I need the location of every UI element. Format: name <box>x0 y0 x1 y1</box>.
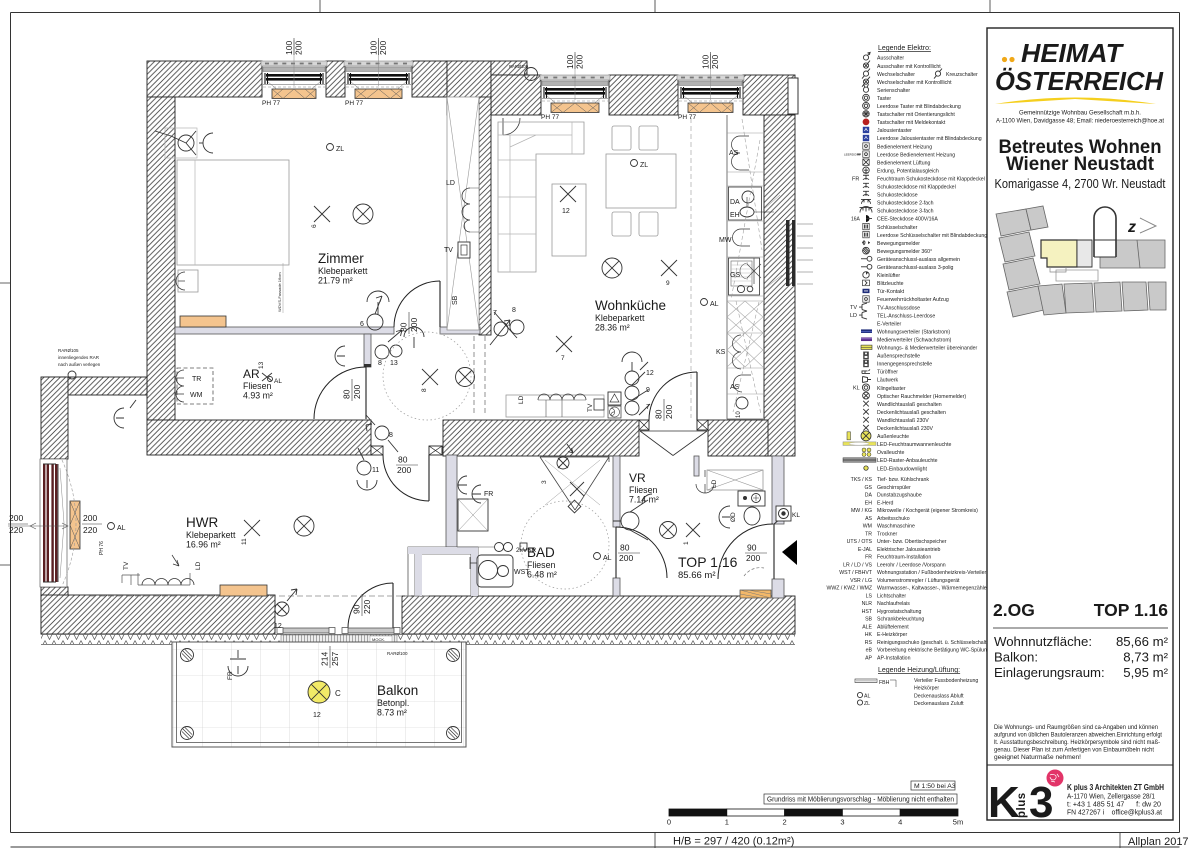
svg-text:KL: KL <box>792 512 800 519</box>
svg-text:Trockner: Trockner <box>877 531 898 537</box>
svg-text:Zimmer: Zimmer <box>318 251 364 266</box>
svg-text:Die Wohnungs- und Raumgrößen s: Die Wohnungs- und Raumgrößen sind ca-Ang… <box>994 724 1158 731</box>
svg-text:Arbeitsschuko: Arbeitsschuko <box>877 516 910 522</box>
svg-text:Einlagerungsraum:: Einlagerungsraum: <box>994 665 1105 680</box>
svg-text:220: 220 <box>83 525 97 535</box>
svg-text:ÖSTERREICH: ÖSTERREICH <box>995 67 1164 96</box>
svg-text:0: 0 <box>667 818 671 827</box>
svg-text:Schrankbeleuchtung: Schrankbeleuchtung <box>877 617 924 623</box>
svg-text:Läutwerk: Läutwerk <box>877 378 898 384</box>
svg-text:85.66 m²: 85.66 m² <box>678 570 716 581</box>
svg-text:WWZ / KWZ / WMZ: WWZ / KWZ / WMZ <box>826 586 872 592</box>
svg-text:6.48 m²: 6.48 m² <box>527 570 557 580</box>
svg-text:Dunstabzugshaube: Dunstabzugshaube <box>877 493 922 499</box>
svg-text:85,66 m²: 85,66 m² <box>1116 634 1169 649</box>
svg-text:200: 200 <box>575 55 585 69</box>
svg-text:Klebeparkett: Klebeparkett <box>186 530 236 540</box>
svg-text:TOP 1.16: TOP 1.16 <box>678 554 738 570</box>
svg-text:11: 11 <box>241 538 248 545</box>
svg-text:AS: AS <box>729 150 739 157</box>
svg-text:Deckenlichtauslaß 230V: Deckenlichtauslaß 230V <box>877 426 933 432</box>
svg-text:Geräteanschlussl-auslass 3-pol: Geräteanschlussl-auslass 3-polig <box>877 265 954 271</box>
svg-text:Nachlaufrelais: Nachlaufrelais <box>877 601 910 607</box>
svg-text:3: 3 <box>840 818 844 827</box>
svg-text:HWR: HWR <box>186 515 218 530</box>
svg-text:12: 12 <box>646 370 654 377</box>
svg-text:FN 427267 i office@kplus3.a: FN 427267 i office@kplus3.at <box>1067 808 1162 817</box>
svg-text:aufgrund von üblichen Bautoler: aufgrund von üblichen Bautoleranzen abwe… <box>994 732 1162 739</box>
svg-text:Gemeinnützige Wohnbau Gesellsc: Gemeinnützige Wohnbau Gesellschaft m.b.h… <box>1019 110 1141 117</box>
svg-text:M 1:50 bei A3: M 1:50 bei A3 <box>914 783 956 790</box>
svg-text:Fliesen: Fliesen <box>629 485 657 495</box>
svg-text:WM: WM <box>190 392 203 399</box>
svg-text:LD: LD <box>711 479 718 488</box>
svg-text:LR / LD / VS: LR / LD / VS <box>843 562 872 568</box>
svg-text:2: 2 <box>783 818 787 827</box>
svg-text:Betonpl.: Betonpl. <box>377 698 409 708</box>
svg-text:z: z <box>1127 219 1136 236</box>
svg-text:Feuchtraum-Installation: Feuchtraum-Installation <box>877 555 931 561</box>
svg-text:genau. Dieser Plan ist zum Anf: genau. Dieser Plan ist zum Anfertigen vo… <box>994 747 1154 754</box>
svg-text:200: 200 <box>397 465 411 475</box>
svg-text:TR: TR <box>865 531 872 537</box>
svg-text:ZL: ZL <box>640 162 648 169</box>
svg-text:TV: TV <box>444 247 453 254</box>
svg-text:Schukosteckdose mit Klappdecke: Schukosteckdose mit Klappdeckel <box>877 185 956 191</box>
svg-text:AL: AL <box>710 301 719 308</box>
svg-text:Klebeparkett: Klebeparkett <box>595 313 645 323</box>
svg-text:Unter- bzw. Obertischspeicher: Unter- bzw. Obertischspeicher <box>877 539 947 545</box>
svg-text:8: 8 <box>378 360 382 367</box>
svg-text:200: 200 <box>664 405 674 419</box>
svg-text:Optischer Rauchmelder (Homemel: Optischer Rauchmelder (Homemelder) <box>877 394 966 400</box>
svg-text:Tastschalter mit Orientierungs: Tastschalter mit Orientierungslicht <box>877 112 955 118</box>
svg-text:MW / KG: MW / KG <box>851 508 872 514</box>
svg-text:RS: RS <box>865 640 873 646</box>
svg-text:FR: FR <box>227 671 234 680</box>
svg-text:FR: FR <box>484 491 493 498</box>
svg-text:FBH: FBH <box>879 680 890 686</box>
svg-text:PH 77: PH 77 <box>541 114 559 121</box>
svg-text:90: 90 <box>352 604 362 614</box>
svg-text:Wohnküche: Wohnküche <box>595 298 666 313</box>
svg-text:200: 200 <box>9 513 23 523</box>
svg-text:NLR: NLR <box>862 601 873 607</box>
svg-text:Leerdose Schlüsselschalter mit: Leerdose Schlüsselschalter mit Blindabde… <box>877 233 987 239</box>
svg-text:Serienschalter: Serienschalter <box>877 88 910 94</box>
svg-text:Kleinlüfter: Kleinlüfter <box>877 273 900 279</box>
svg-text:Heizkörper: Heizkörper <box>914 686 939 692</box>
svg-text:E-JAL: E-JAL <box>858 547 872 553</box>
svg-text:LD: LD <box>518 395 525 404</box>
svg-text:LEERDOSE: LEERDOSE <box>844 153 860 157</box>
svg-text:WM: WM <box>863 524 872 530</box>
svg-text:DA: DA <box>865 493 873 499</box>
svg-text:200: 200 <box>352 385 362 399</box>
svg-text:A-1100 Wien, Davidgasse 48; Em: A-1100 Wien, Davidgasse 48; Email: niede… <box>996 118 1164 125</box>
svg-text:16.96 m²: 16.96 m² <box>186 540 221 550</box>
svg-text:Deckenauslass Abluft: Deckenauslass Abluft <box>914 694 964 700</box>
svg-text:1: 1 <box>725 818 729 827</box>
svg-text:12: 12 <box>274 623 282 630</box>
svg-text:13: 13 <box>390 360 398 367</box>
svg-text:Tief- bzw. Kühlschrank: Tief- bzw. Kühlschrank <box>877 477 929 483</box>
svg-text:Außenleuchte: Außenleuchte <box>877 434 909 440</box>
svg-text:HEIMAT: HEIMAT <box>1021 38 1124 68</box>
svg-text:Wohnungsverteiler (Starkstrom): Wohnungsverteiler (Starkstrom) <box>877 329 950 335</box>
svg-text:EH: EH <box>865 500 872 506</box>
svg-text:Wiener Neustadt: Wiener Neustadt <box>1006 153 1154 175</box>
svg-text:Vorbereitung elektrische Betät: Vorbereitung elektrische Betätigung WC-S… <box>877 648 990 654</box>
svg-text:Kreuzschalter: Kreuzschalter <box>946 72 978 78</box>
svg-text:Leerdose Jalousientaster mit B: Leerdose Jalousientaster mit Blindabdeck… <box>877 136 982 142</box>
svg-text:2.OG: 2.OG <box>993 600 1035 620</box>
svg-text:11: 11 <box>372 467 379 474</box>
svg-text:WST / FBHVT: WST / FBHVT <box>839 570 873 576</box>
svg-text:4.93 m²: 4.93 m² <box>243 391 273 401</box>
svg-text:200: 200 <box>378 41 388 55</box>
svg-text:ZL: ZL <box>864 701 870 707</box>
svg-text:innenliegendes RAR: innenliegendes RAR <box>58 355 100 360</box>
svg-text:Wandlichtauslaß 230V: Wandlichtauslaß 230V <box>877 418 929 424</box>
svg-text:Allplan 2017: Allplan 2017 <box>1128 836 1189 848</box>
svg-text:80: 80 <box>620 543 630 553</box>
svg-text:AS: AS <box>865 516 872 522</box>
svg-text:220: 220 <box>9 525 23 535</box>
svg-text:TV: TV <box>587 403 594 412</box>
svg-text:Grundriss mit Möblierungsvorsc: Grundriss mit Möblierungsvorschlag - Möb… <box>767 797 954 804</box>
svg-text:E-Herd: E-Herd <box>877 500 894 506</box>
svg-text:Legende Heizung/Lüftung:: Legende Heizung/Lüftung: <box>878 667 960 674</box>
svg-text:E-Heizkörper: E-Heizkörper <box>877 632 908 638</box>
svg-text:Medienverteiler (Schwachstrom): Medienverteiler (Schwachstrom) <box>877 337 952 343</box>
svg-text:E-Verteiler: E-Verteiler <box>877 321 901 327</box>
svg-text:LS: LS <box>866 593 873 599</box>
svg-text:AS: AS <box>730 384 740 391</box>
svg-text:DA: DA <box>730 199 740 206</box>
svg-text:80: 80 <box>399 322 409 332</box>
svg-text:ZL: ZL <box>336 146 344 153</box>
svg-text:10: 10 <box>736 411 742 418</box>
svg-text:8: 8 <box>512 307 516 314</box>
svg-text:H/B = 297 / 420 (0.12m²): H/B = 297 / 420 (0.12m²) <box>673 836 794 848</box>
svg-text:6: 6 <box>360 321 364 328</box>
svg-text:2xVSR: 2xVSR <box>516 547 537 554</box>
svg-text:KL: KL <box>853 386 860 392</box>
svg-text:TKS / KS: TKS / KS <box>851 477 873 483</box>
svg-text:Reinigungsschuko (geschalt. ü.: Reinigungsschuko (geschalt. ü. Schlüssel… <box>877 640 993 646</box>
svg-text:200: 200 <box>294 41 304 55</box>
svg-text:80: 80 <box>398 455 408 465</box>
svg-text:Ovalleuchte: Ovalleuchte <box>877 450 905 456</box>
svg-text:HK: HK <box>865 632 873 638</box>
svg-text:RARØ105: RARØ105 <box>58 348 79 353</box>
svg-text:28.36 m²: 28.36 m² <box>595 323 630 333</box>
svg-text:EH: EH <box>730 212 740 219</box>
svg-text:PH 77: PH 77 <box>345 100 363 107</box>
svg-text:5,95 m²: 5,95 m² <box>1123 665 1168 680</box>
svg-text:Hygrostatschaltung: Hygrostatschaltung <box>877 609 922 615</box>
svg-text:geeignet Naturmaße nehmen!: geeignet Naturmaße nehmen! <box>994 754 1081 761</box>
svg-text:21.79 m²: 21.79 m² <box>318 276 353 286</box>
svg-text:PH 77: PH 77 <box>262 100 280 107</box>
svg-text:Wohnungsstation / Fußbodenheiz: Wohnungsstation / Fußbodenheizkreis-Vert… <box>877 570 986 576</box>
svg-text:Blitzleuchte: Blitzleuchte <box>877 281 904 287</box>
svg-text:Bewegungsmelder 360°: Bewegungsmelder 360° <box>877 249 932 255</box>
svg-text:Waschmaschine: Waschmaschine <box>877 524 915 530</box>
svg-text:9: 9 <box>666 280 670 287</box>
svg-text:7: 7 <box>561 355 565 362</box>
svg-text:Innengegensprechstelle: Innengegensprechstelle <box>877 362 932 368</box>
svg-text:LD: LD <box>195 561 202 570</box>
svg-text:Fliesen: Fliesen <box>527 560 555 570</box>
svg-text:WST: WST <box>514 569 530 576</box>
svg-text:200: 200 <box>746 553 760 563</box>
svg-text:Bedienelement Heizung: Bedienelement Heizung <box>877 144 932 150</box>
svg-text:8.73 m²: 8.73 m² <box>377 708 407 718</box>
svg-text:90: 90 <box>747 543 757 553</box>
svg-text:220: 220 <box>362 600 372 614</box>
svg-text:3: 3 <box>541 480 548 484</box>
svg-text:214: 214 <box>320 652 330 666</box>
svg-text:16A: 16A <box>851 217 861 223</box>
svg-text:Leerohr / Leerdose /Vorspann: Leerohr / Leerdose /Vorspann <box>877 562 946 568</box>
svg-text:Türöffner: Türöffner <box>877 370 898 376</box>
svg-text:Schukosteckdose 3-fach: Schukosteckdose 3-fach <box>877 209 934 215</box>
svg-text:Wechselschalter: Wechselschalter <box>877 72 915 78</box>
svg-text:Geräteanschlussl-auslass allge: Geräteanschlussl-auslass allgemein <box>877 257 960 263</box>
svg-text:KS: KS <box>716 349 726 356</box>
svg-text:TV: TV <box>850 305 857 311</box>
svg-text:FR: FR <box>865 555 872 561</box>
svg-text:Leerdose Bedienelement Heizung: Leerdose Bedienelement Heizung <box>877 152 955 158</box>
svg-text:PH 76: PH 76 <box>99 541 105 555</box>
svg-text:Schlüsselschalter: Schlüsselschalter <box>877 225 918 231</box>
svg-text:AP-Installation: AP-Installation <box>877 655 911 661</box>
svg-text:7: 7 <box>493 310 497 317</box>
svg-text:200: 200 <box>83 513 97 523</box>
svg-text:Leerdose Taster mit Blindabdec: Leerdose Taster mit Blindabdeckung <box>877 104 961 110</box>
svg-text:8: 8 <box>421 388 428 392</box>
svg-text:PH 77: PH 77 <box>678 114 696 121</box>
svg-text:plus: plus <box>1016 792 1028 818</box>
svg-text:Feuerwehrrückholtaster Aufzug: Feuerwehrrückholtaster Aufzug <box>877 297 949 303</box>
svg-text:Taster: Taster <box>877 96 891 102</box>
svg-text:WDVS-Fassade 16cm: WDVS-Fassade 16cm <box>277 272 282 312</box>
svg-text:257: 257 <box>330 652 340 666</box>
svg-text:100: 100 <box>284 41 294 55</box>
svg-text:Komarigasse 4, 2700 Wr. Neusta: Komarigasse 4, 2700 Wr. Neustadt <box>995 176 1166 191</box>
svg-text:Deckenauslass Zuluft: Deckenauslass Zuluft <box>914 701 964 707</box>
svg-text:7: 7 <box>646 404 650 411</box>
svg-text:4: 4 <box>898 818 902 827</box>
svg-text:C: C <box>335 689 341 698</box>
svg-text:12: 12 <box>562 208 570 215</box>
svg-text:Balkon: Balkon <box>377 683 418 698</box>
svg-text:TOP 1.16: TOP 1.16 <box>1094 600 1169 620</box>
svg-text:Mikrowelle / Kochgerät (eigene: Mikrowelle / Kochgerät (eigener Stromkre… <box>877 508 978 514</box>
svg-text:lt. Ausstattungsbeschreibung.: lt. Ausstattungsbeschreibung. Heizkörper… <box>994 739 1160 746</box>
svg-text:Wandlichtauslaß geschalten: Wandlichtauslaß geschalten <box>877 402 942 408</box>
svg-text:Bewegungsmelder: Bewegungsmelder <box>877 241 920 247</box>
svg-text:Tür-Kontakt: Tür-Kontakt <box>877 289 905 295</box>
svg-text:AL: AL <box>603 555 612 562</box>
svg-text:MW: MW <box>719 237 732 244</box>
svg-text:Jalousientaster: Jalousientaster <box>877 128 912 134</box>
svg-text:CEE-Steckdose 400V/16A: CEE-Steckdose 400V/16A <box>877 217 938 223</box>
svg-text:100: 100 <box>369 41 379 55</box>
svg-text:Ausschalter: Ausschalter <box>877 56 904 62</box>
svg-text:Schukosteckdose 2-fach: Schukosteckdose 2-fach <box>877 201 934 207</box>
svg-text:200: 200 <box>710 55 720 69</box>
svg-text:SB: SB <box>865 617 872 623</box>
svg-text:80: 80 <box>654 409 664 419</box>
svg-text:Außensprechstelle: Außensprechstelle <box>877 354 920 360</box>
svg-text:TR: TR <box>192 376 201 383</box>
svg-text:80: 80 <box>342 389 352 399</box>
svg-text:6: 6 <box>311 224 318 228</box>
svg-text:Schukosteckdose: Schukosteckdose <box>877 193 918 199</box>
svg-text:100: 100 <box>701 55 711 69</box>
svg-text:AP: AP <box>865 655 872 661</box>
svg-text:Tastschalter mit Meldekontakt: Tastschalter mit Meldekontakt <box>877 120 946 126</box>
svg-text:TV-Anschlussdose: TV-Anschlussdose <box>877 305 920 311</box>
svg-text:nach außen verlegen: nach außen verlegen <box>58 362 101 367</box>
svg-text:Geschirrspüler: Geschirrspüler <box>877 485 911 491</box>
svg-text:VSR / LG: VSR / LG <box>850 578 872 584</box>
svg-text:100: 100 <box>565 55 575 69</box>
svg-text:AL: AL <box>864 694 870 700</box>
svg-text:ALE: ALE <box>862 624 872 630</box>
svg-text:LD: LD <box>446 180 455 187</box>
svg-text:Elektrischer Jalousieantrieb: Elektrischer Jalousieantrieb <box>877 547 941 553</box>
svg-text:Bedienelement Lüftung: Bedienelement Lüftung <box>877 160 930 166</box>
svg-text:eB: eB <box>866 648 873 654</box>
svg-text:Volumenstromregler / Lüftungsg: Volumenstromregler / Lüftungsgerät <box>877 578 960 584</box>
svg-text:Balkon:: Balkon: <box>994 650 1038 665</box>
svg-text:200: 200 <box>409 318 419 332</box>
svg-text:8: 8 <box>389 432 393 439</box>
svg-text:LED-Feuchtraumwannenleuchte: LED-Feuchtraumwannenleuchte <box>877 442 952 448</box>
svg-text:GS: GS <box>865 485 873 491</box>
svg-text:Fliesen: Fliesen <box>243 381 271 391</box>
svg-text:AL: AL <box>117 525 126 532</box>
svg-text:Warmwasser-, Kaltwasser-, Wärm: Warmwasser-, Kaltwasser-, Wärmemegenzähl… <box>877 586 989 592</box>
svg-text:Ausschalter mit Kontrolllicht: Ausschalter mit Kontrolllicht <box>877 64 941 70</box>
svg-text:5m: 5m <box>953 818 963 827</box>
svg-text:UTS / OTS: UTS / OTS <box>847 539 873 545</box>
svg-text:VR: VR <box>629 471 646 485</box>
svg-text:AL: AL <box>274 378 282 385</box>
svg-text:12: 12 <box>313 712 321 719</box>
svg-text:TV: TV <box>123 561 130 570</box>
svg-text:LD: LD <box>850 313 857 319</box>
svg-text:Legende Elektro:: Legende Elektro: <box>878 45 931 52</box>
svg-text:Wechselschalter mit Kontrollli: Wechselschalter mit Kontrolllicht <box>877 80 952 86</box>
svg-text:Lichtschalter: Lichtschalter <box>877 593 906 599</box>
svg-text:13: 13 <box>258 361 265 369</box>
svg-text:HST: HST <box>862 609 873 615</box>
svg-text:3: 3 <box>1029 778 1053 827</box>
svg-text:200: 200 <box>619 553 633 563</box>
svg-text:LED-Einbaudownlight: LED-Einbaudownlight <box>877 466 927 472</box>
svg-text:RARØ100: RARØ100 <box>509 64 529 69</box>
svg-text:Klebeparkett: Klebeparkett <box>318 266 368 276</box>
svg-text:Feuchtraum Schukosteckdose mit: Feuchtraum Schukosteckdose mit Klappdeck… <box>877 176 985 182</box>
svg-text:Ablüftelement: Ablüftelement <box>877 624 909 630</box>
svg-text:Verteiler Fussbodenheizung: Verteiler Fussbodenheizung <box>914 678 978 684</box>
svg-text:Wohnnutzfläche:: Wohnnutzfläche: <box>994 634 1092 649</box>
svg-text:8,73 m²: 8,73 m² <box>1123 650 1168 665</box>
svg-text:Klingeltaster: Klingeltaster <box>877 386 906 392</box>
svg-text:Deckenlichtauslaß geschalten: Deckenlichtauslaß geschalten <box>877 410 946 416</box>
svg-text:MOCK.: MOCK. <box>372 637 385 642</box>
svg-text:ØD: ØD <box>730 512 737 522</box>
svg-text:FR: FR <box>852 176 859 182</box>
svg-text:RARØ100: RARØ100 <box>387 651 408 656</box>
svg-text:LED-Raster-Anbauleuchte: LED-Raster-Anbauleuchte <box>877 458 938 464</box>
svg-text:TEL-Anschluss-Leerdose: TEL-Anschluss-Leerdose <box>877 313 935 319</box>
svg-text:Erdung, Potentialausgleich: Erdung, Potentialausgleich <box>877 168 939 174</box>
svg-text:9: 9 <box>646 387 650 394</box>
svg-text:SB: SB <box>452 295 459 305</box>
svg-text:Wohnungs- & Medienverteiler üb: Wohnungs- & Medienverteiler übereinander <box>877 346 978 352</box>
svg-text:1: 1 <box>683 541 690 545</box>
